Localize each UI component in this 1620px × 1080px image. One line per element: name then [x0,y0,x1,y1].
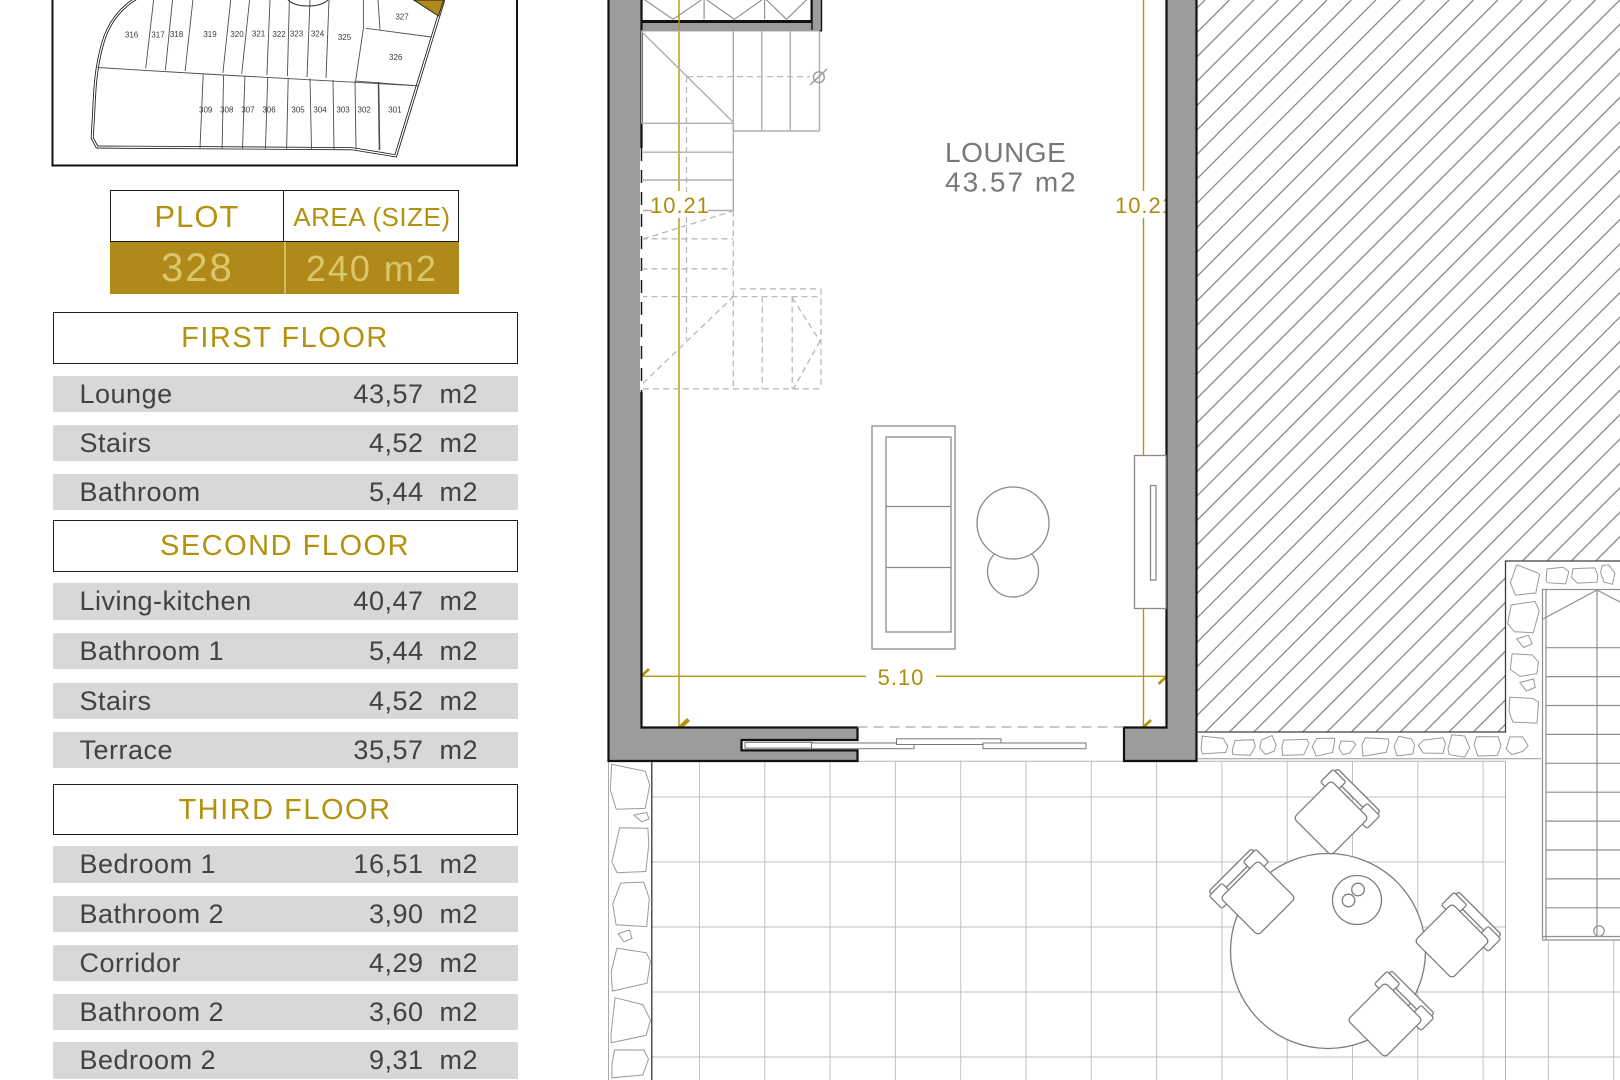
svg-text:321: 321 [252,30,266,39]
svg-text:302: 302 [358,106,372,115]
svg-text:305: 305 [291,106,305,115]
svg-text:327: 327 [395,13,409,22]
svg-text:303: 303 [336,106,350,115]
svg-text:43.57 m2: 43.57 m2 [945,167,1078,198]
svg-text:320: 320 [230,30,244,39]
svg-text:5.10: 5.10 [878,665,925,690]
svg-text:326: 326 [389,53,403,62]
svg-text:316: 316 [125,31,139,40]
svg-text:325: 325 [338,33,352,42]
svg-text:319: 319 [203,30,217,39]
svg-text:10.21: 10.21 [650,193,710,218]
svg-text:308: 308 [220,106,234,115]
svg-text:318: 318 [170,30,184,39]
svg-text:LOUNGE: LOUNGE [945,137,1066,168]
svg-text:322: 322 [272,30,286,39]
svg-text:324: 324 [311,29,325,38]
svg-text:309: 309 [199,106,213,115]
svg-text:323: 323 [290,29,304,38]
svg-text:307: 307 [241,106,255,115]
svg-text:301: 301 [388,106,402,115]
svg-text:306: 306 [262,106,276,115]
svg-text:317: 317 [151,31,165,40]
svg-text:304: 304 [313,106,327,115]
